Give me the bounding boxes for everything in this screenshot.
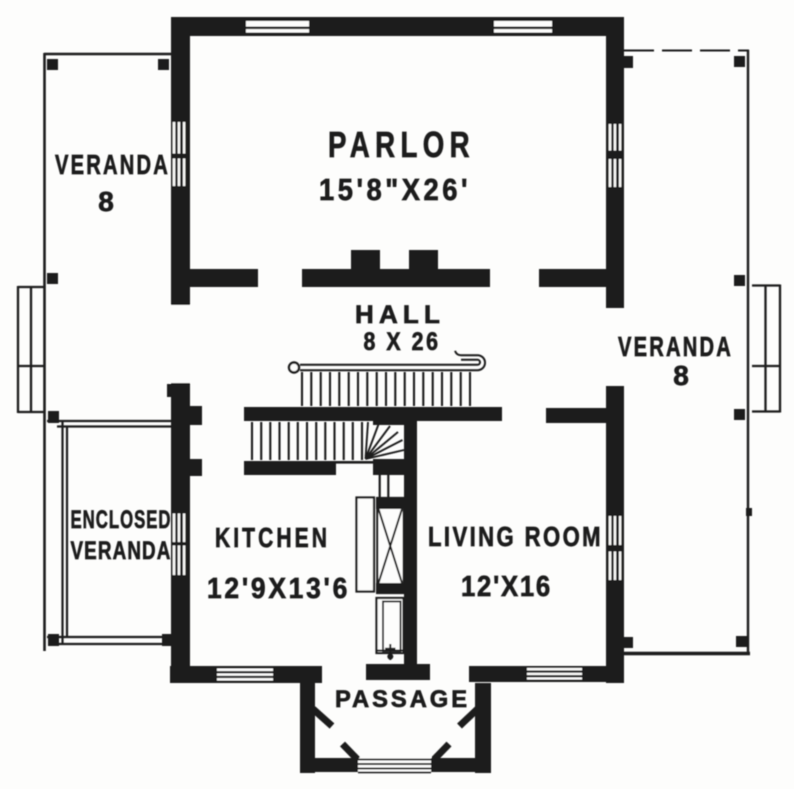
svg-text:8: 8 [98,186,114,217]
svg-text:HALL: HALL [355,301,445,329]
svg-text:KITCHEN: KITCHEN [215,522,330,553]
svg-text:12'X16: 12'X16 [461,571,552,603]
svg-text:VERANDA: VERANDA [618,331,733,362]
svg-text:VERANDA: VERANDA [55,149,170,180]
svg-text:12'9X13'6: 12'9X13'6 [207,573,350,605]
svg-text:VERANDA: VERANDA [71,537,172,565]
svg-text:PARLOR: PARLOR [328,124,475,165]
svg-text:8 X 26: 8 X 26 [364,328,441,356]
svg-text:LIVING ROOM: LIVING ROOM [428,521,603,552]
svg-text:15'8"X26': 15'8"X26' [319,172,471,207]
svg-text:PASSAGE: PASSAGE [335,686,470,713]
svg-text:ENCLOSED: ENCLOSED [71,506,172,534]
svg-text:8: 8 [673,360,689,391]
